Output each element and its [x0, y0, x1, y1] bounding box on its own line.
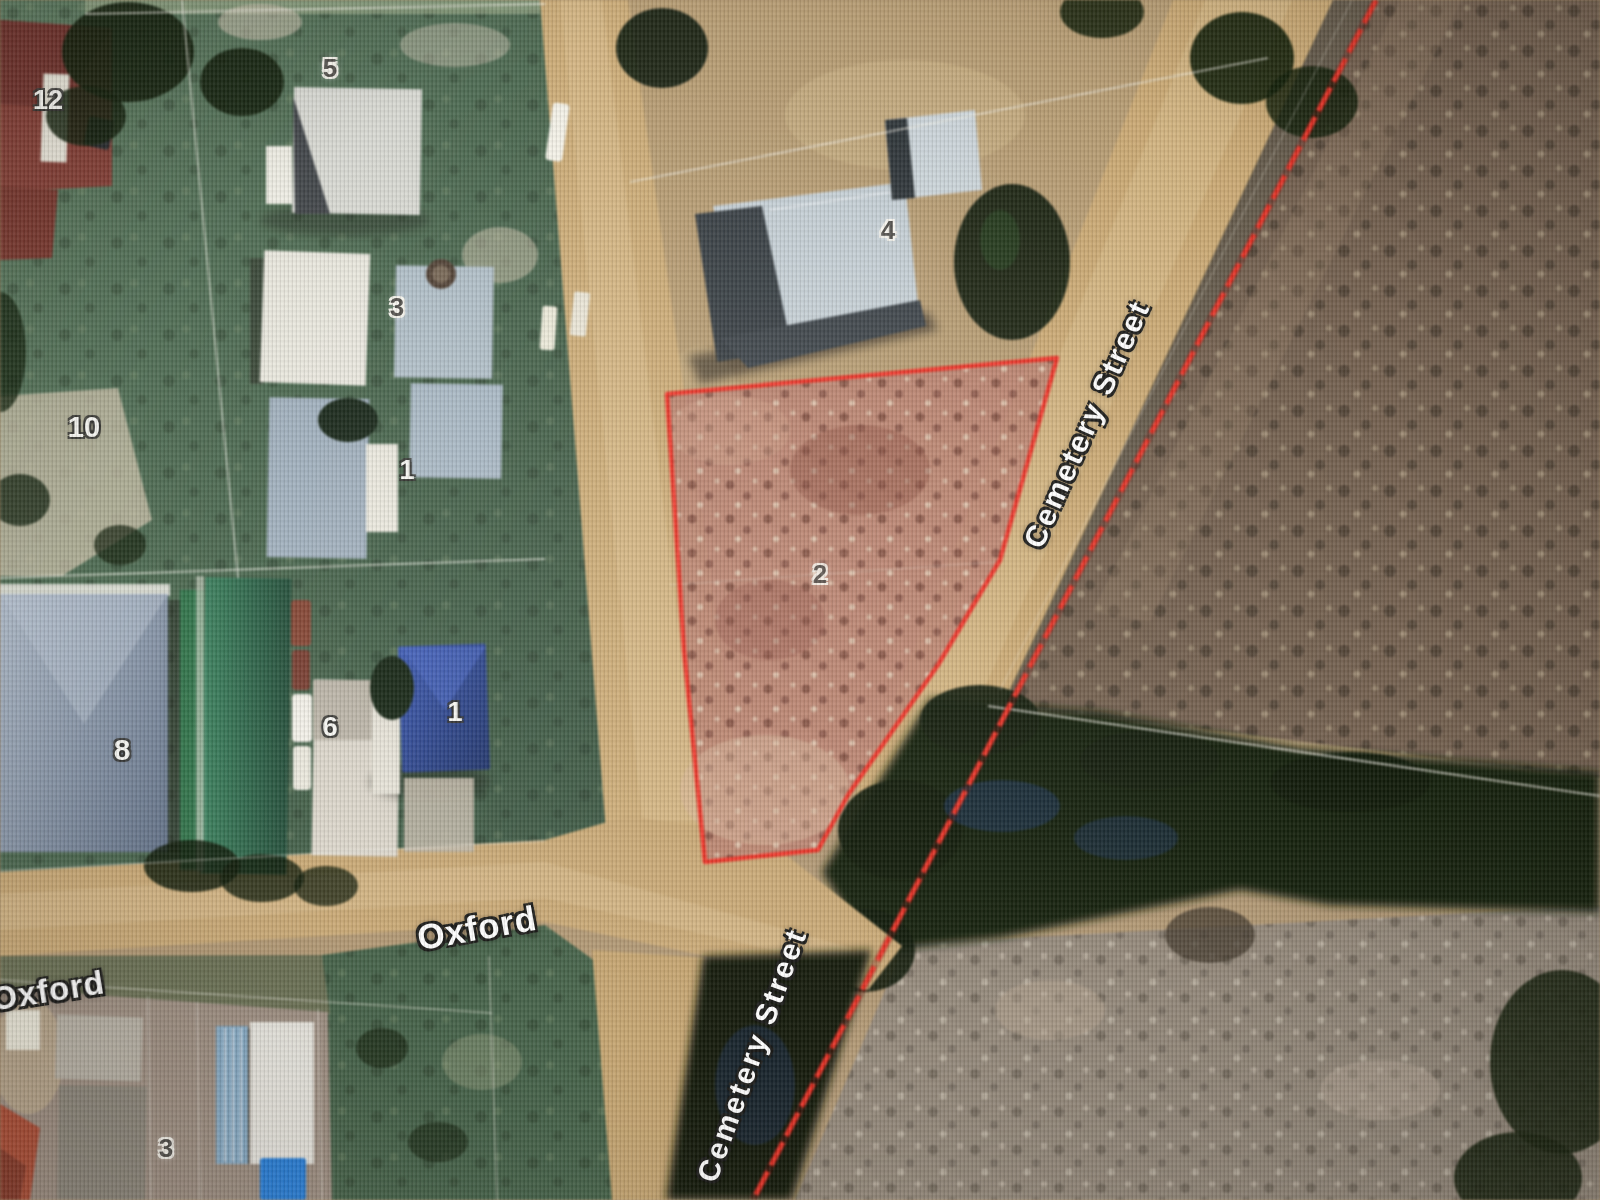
building-roof — [55, 1015, 143, 1082]
tree — [220, 854, 304, 902]
building-roof — [366, 444, 398, 532]
tree — [616, 8, 708, 88]
building-roof-white — [260, 250, 371, 386]
building-shadow — [168, 600, 180, 852]
vehicle — [539, 306, 557, 351]
satellite-map[interactable]: 12 5 3 10 1 4 2 8 6 1 3 Oxford Oxford Ce… — [0, 0, 1600, 1200]
tree — [318, 398, 378, 442]
building-roof — [266, 146, 292, 204]
vehicle — [293, 746, 311, 790]
building-roof-white — [250, 1022, 314, 1164]
building-roof — [57, 1085, 147, 1200]
building-roof — [404, 778, 474, 852]
satellite-imagery-layer — [0, 0, 1600, 1200]
vehicle — [292, 650, 310, 690]
building-roof — [6, 1010, 40, 1050]
tree — [200, 48, 284, 116]
building-roof-green — [200, 577, 291, 874]
vehicle — [292, 694, 312, 742]
tree — [370, 656, 414, 720]
tree — [294, 866, 358, 906]
vehicle — [291, 600, 311, 646]
building-roof-red — [0, 186, 58, 260]
building-roof — [409, 383, 503, 479]
tree — [46, 86, 126, 146]
pool-blue — [260, 1158, 306, 1200]
